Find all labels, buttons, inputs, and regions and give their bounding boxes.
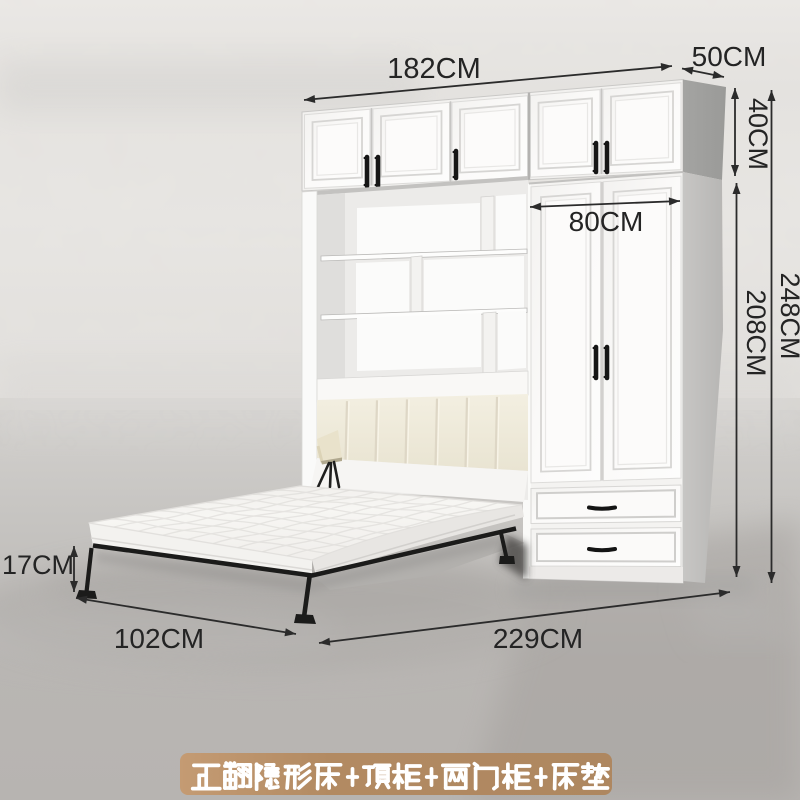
- svg-text:102CM: 102CM: [114, 623, 204, 654]
- svg-text:80CM: 80CM: [569, 206, 644, 237]
- svg-text:182CM: 182CM: [387, 53, 481, 85]
- svg-text:50CM: 50CM: [692, 41, 767, 72]
- svg-text:40CM: 40CM: [743, 98, 773, 170]
- svg-text:248CM: 248CM: [775, 272, 800, 359]
- svg-text:229CM: 229CM: [493, 623, 583, 654]
- svg-text:17CM: 17CM: [2, 550, 74, 580]
- svg-text:208CM: 208CM: [741, 289, 771, 376]
